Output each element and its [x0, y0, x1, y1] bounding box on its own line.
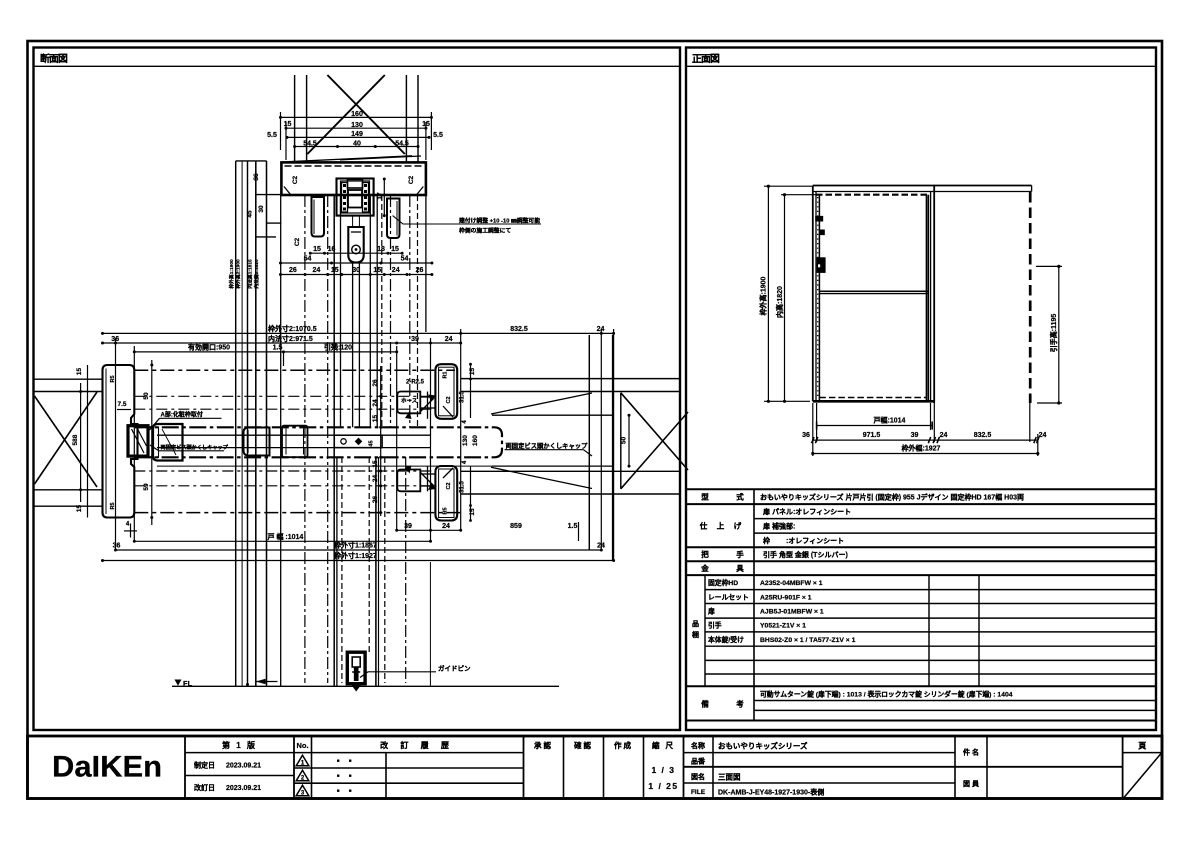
svg-text:式: 式	[736, 492, 744, 502]
svg-text:戸 幅 :1014: 戸 幅 :1014	[268, 532, 304, 541]
svg-text:縮 尺: 縮 尺	[652, 740, 675, 750]
svg-text:26: 26	[372, 379, 379, 387]
svg-text:梱: 梱	[692, 630, 699, 639]
svg-text:24: 24	[597, 543, 605, 550]
svg-text:引手: 引手	[708, 621, 722, 630]
svg-text:50: 50	[621, 437, 628, 445]
svg-text:24: 24	[313, 267, 321, 274]
svg-text:枠外寸1:1927: 枠外寸1:1927	[334, 551, 377, 560]
svg-text:A部:化粧枠取付: A部:化粧枠取付	[161, 411, 203, 419]
svg-text:正面図: 正面図	[692, 53, 720, 65]
svg-text:作成: 作成	[614, 740, 633, 750]
svg-text:品番: 品番	[691, 757, 706, 766]
svg-text:承認: 承認	[534, 740, 553, 750]
svg-text:枠外寸1:1867: 枠外寸1:1867	[334, 541, 377, 550]
svg-text:832.5: 832.5	[974, 432, 992, 439]
svg-text:げ: げ	[734, 521, 742, 531]
svg-text:15: 15	[284, 121, 292, 128]
svg-text:第 1 版: 第 1 版	[222, 740, 257, 750]
svg-text:54.5: 54.5	[303, 140, 317, 147]
svg-text:固定枠HD: 固定枠HD	[708, 578, 738, 587]
svg-text:図名: 図名	[691, 772, 705, 781]
svg-text:建付け調整 +10 -10 ㎜調整可能: 建付け調整 +10 -10 ㎜調整可能	[458, 216, 540, 224]
svg-text:54.5: 54.5	[395, 140, 409, 147]
svg-text:改 訂 履 歴: 改 訂 履 歴	[380, 740, 454, 750]
svg-text:588: 588	[72, 434, 79, 445]
svg-text:15: 15	[372, 415, 379, 423]
svg-text:有効開口:950: 有効開口:950	[188, 343, 230, 352]
svg-text:両固定ビス頭かくしキャップ: 両固定ビス頭かくしキャップ	[506, 441, 589, 450]
svg-text:59: 59	[143, 483, 150, 491]
svg-text:確認: 確認	[573, 740, 593, 750]
svg-text:39: 39	[911, 432, 919, 439]
svg-text:40: 40	[353, 140, 361, 147]
svg-text:引手 角型 金銀 (Tシルバー): 引手 角型 金銀 (Tシルバー)	[763, 550, 848, 559]
svg-text:上: 上	[717, 521, 725, 531]
svg-text:枠外寸2:1070.5: 枠外寸2:1070.5	[268, 324, 317, 333]
svg-text:枠外幅:1927: 枠外幅:1927	[902, 444, 941, 453]
svg-text:15: 15	[313, 246, 321, 253]
svg-text:24: 24	[442, 523, 450, 530]
svg-text:頁: 頁	[1138, 742, 1146, 751]
svg-text:26: 26	[416, 267, 424, 274]
svg-text:Y0521-Z1V × 1: Y0521-Z1V × 1	[760, 623, 806, 630]
svg-text:両固定ビス頭かくしキャップ: 両固定ビス頭かくしキャップ	[161, 443, 229, 451]
svg-text:手: 手	[736, 549, 744, 559]
svg-text:24: 24	[940, 432, 948, 439]
svg-text:160: 160	[351, 111, 363, 118]
svg-text:おもいやりキッズシリーズ: おもいやりキッズシリーズ	[718, 741, 808, 751]
svg-text:枠側の施工調整にて: 枠側の施工調整にて	[459, 226, 511, 234]
svg-text:36: 36	[802, 432, 810, 439]
svg-text:7.5: 7.5	[117, 401, 126, 408]
svg-text:C2: C2	[446, 482, 452, 489]
svg-text:39: 39	[404, 523, 412, 530]
svg-text:15: 15	[391, 246, 399, 253]
svg-text:金: 金	[700, 563, 709, 573]
svg-text:扉: 扉	[708, 607, 715, 616]
svg-text:三面図: 三面図	[718, 773, 741, 782]
svg-text:制定日: 制定日	[194, 761, 215, 770]
svg-text:C2: C2	[446, 396, 452, 403]
svg-text:1 / 25: 1 / 25	[648, 781, 678, 791]
svg-text:971.5: 971.5	[863, 432, 881, 439]
svg-text:24: 24	[445, 336, 453, 343]
svg-text:枠外高1:1900: 枠外高1:1900	[228, 259, 235, 289]
svg-text:160: 160	[472, 435, 479, 446]
svg-text:149: 149	[351, 131, 363, 138]
svg-text:1.5: 1.5	[273, 345, 283, 352]
svg-text:レールセット: レールセット	[708, 594, 749, 602]
svg-text:考: 考	[736, 699, 744, 709]
svg-text:改訂日: 改訂日	[194, 783, 215, 792]
svg-text:BHS02-Z0 × 1 / TA577-Z1V × 1: BHS02-Z0 × 1 / TA577-Z1V × 1	[760, 637, 856, 644]
svg-text:DK-AMB-J-EY48-1927-1930-表側: DK-AMB-J-EY48-1927-1930-表側	[718, 788, 824, 797]
svg-text:24: 24	[372, 475, 379, 483]
svg-text:扉 パネル:オレフィンシート: 扉 パネル:オレフィンシート	[762, 507, 851, 516]
svg-text:C2: C2	[294, 237, 301, 246]
svg-text:C2: C2	[292, 175, 299, 184]
svg-text:24: 24	[597, 326, 605, 333]
svg-text:内高:1820: 内高:1820	[775, 286, 784, 318]
svg-text:36: 36	[113, 543, 121, 550]
svg-text:DaIKEn: DaIKEn	[52, 751, 162, 784]
svg-text:型: 型	[701, 492, 709, 502]
svg-text:A2352-04MBFW × 1: A2352-04MBFW × 1	[760, 580, 823, 587]
svg-text:832.5: 832.5	[510, 326, 528, 333]
svg-text:2023.09.21: 2023.09.21	[226, 785, 261, 792]
svg-text:5.5: 5.5	[267, 132, 277, 139]
svg-text:内法寸2:971.5: 内法寸2:971.5	[268, 334, 313, 343]
svg-text:54: 54	[401, 255, 409, 262]
svg-text:1 / 3: 1 / 3	[651, 765, 675, 775]
svg-text:859: 859	[510, 523, 522, 530]
svg-text:引手高:1195: 引手高:1195	[1049, 314, 1058, 353]
svg-text:24: 24	[1039, 432, 1047, 439]
svg-text:1.5: 1.5	[568, 523, 578, 530]
svg-text:断面図: 断面図	[40, 52, 68, 65]
svg-text:可動サムターン錠 (扉下端) : 1013 / 表示ロックカ: 可動サムターン錠 (扉下端) : 1013 / 表示ロックカマ錠 シリンダー錠 …	[760, 690, 1013, 699]
svg-text:18: 18	[377, 246, 385, 253]
svg-text:FILE: FILE	[691, 789, 706, 796]
svg-text:30: 30	[258, 205, 265, 213]
svg-text:枠外高:1900: 枠外高:1900	[759, 276, 768, 315]
svg-text:R5: R5	[443, 507, 449, 514]
svg-text:おもいやりキッズシリーズ 片戸片引 (固定枠) 955: おもいやりキッズシリーズ 片戸片引 (固定枠) 955 Jデザイン 固定枠HD …	[760, 493, 1024, 502]
svg-text:45: 45	[369, 440, 375, 446]
svg-text:No.: No.	[296, 741, 308, 750]
svg-text:2-R2.5: 2-R2.5	[406, 380, 425, 386]
svg-text:把: 把	[701, 549, 709, 559]
svg-text:ホース: ホース	[401, 398, 418, 405]
svg-text:24: 24	[372, 399, 379, 407]
svg-text:件 名: 件 名	[963, 748, 979, 757]
svg-text:50: 50	[143, 392, 150, 400]
svg-text:39: 39	[411, 336, 419, 343]
svg-text:15: 15	[422, 121, 430, 128]
svg-text:ガイドピン: ガイドピン	[438, 664, 471, 673]
svg-text:A25RU-901F × 1: A25RU-901F × 1	[760, 595, 812, 602]
svg-text:名称: 名称	[691, 741, 705, 750]
svg-text:図 員: 図 員	[963, 779, 980, 788]
svg-text:15: 15	[76, 368, 83, 376]
svg-text:C2: C2	[408, 175, 415, 184]
svg-text:2023.09.21: 2023.09.21	[226, 763, 261, 770]
svg-text:枠 :オレフィンシート: 枠 :オレフィンシート	[763, 536, 844, 545]
svg-text:FL: FL	[183, 679, 193, 688]
svg-text:15: 15	[372, 460, 379, 468]
svg-text:戸幅:1014: 戸幅:1014	[874, 415, 906, 424]
svg-text:具: 具	[736, 564, 744, 573]
svg-text:24: 24	[392, 267, 400, 274]
svg-text:26: 26	[372, 496, 379, 504]
svg-text:引残:120: 引残:120	[324, 343, 352, 352]
svg-text:本体錠/受け: 本体錠/受け	[708, 635, 744, 644]
svg-text:15: 15	[76, 505, 83, 513]
svg-text:品: 品	[692, 619, 699, 628]
svg-text:R1: R1	[443, 371, 449, 378]
svg-text:仕: 仕	[699, 521, 708, 531]
svg-text:26: 26	[289, 267, 297, 274]
svg-text:扉 補強部:: 扉 補強部:	[762, 522, 795, 531]
svg-text:5.5: 5.5	[433, 132, 443, 139]
svg-text:AJB5J-01MBFW × 1: AJB5J-01MBFW × 1	[760, 609, 824, 616]
svg-text:備: 備	[701, 699, 709, 709]
svg-text:130: 130	[351, 122, 363, 129]
svg-text:130: 130	[462, 435, 469, 446]
